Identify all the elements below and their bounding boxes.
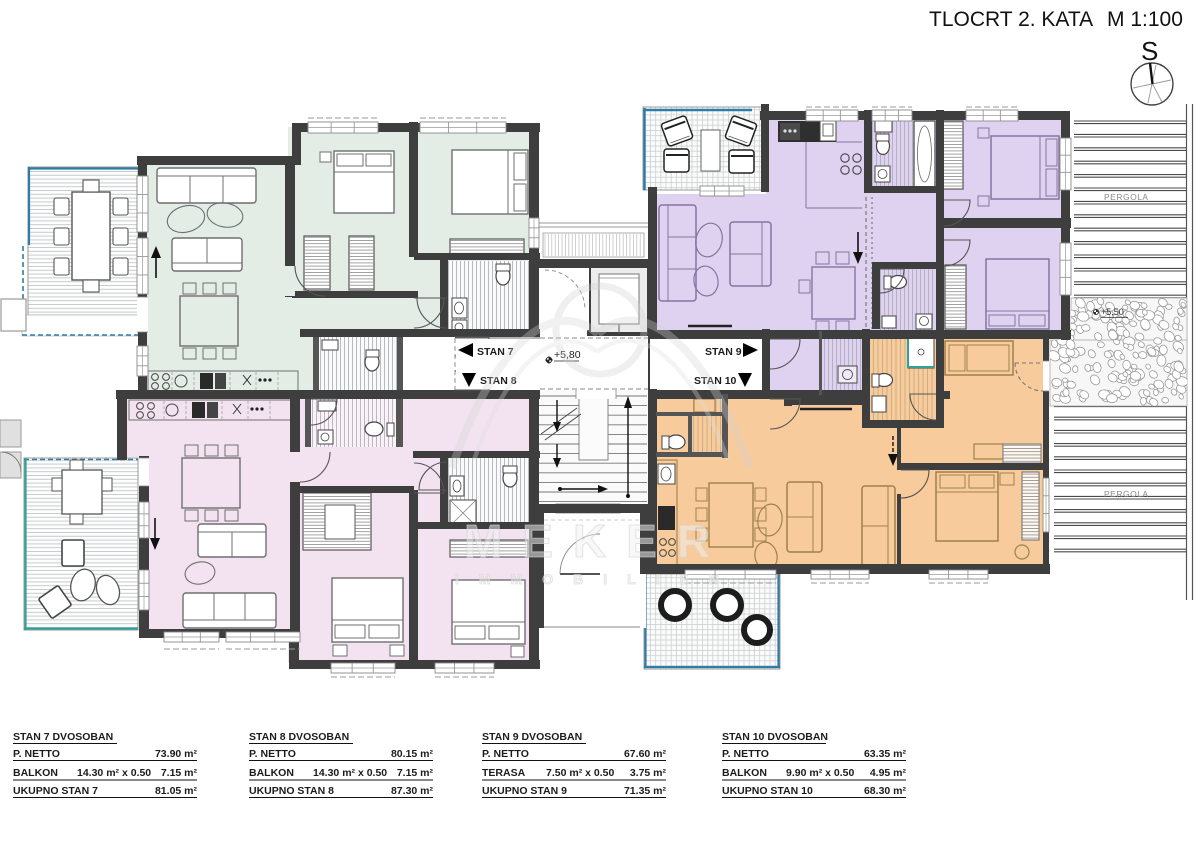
svg-text:STAN 8 DVOSOBAN: STAN 8 DVOSOBAN <box>249 731 349 743</box>
svg-text:7.15 m²: 7.15 m² <box>397 767 434 779</box>
svg-text:71.35 m²: 71.35 m² <box>624 785 667 797</box>
svg-text:67.60 m²: 67.60 m² <box>624 748 667 760</box>
svg-text:14.30 m² x 0.50: 14.30 m² x 0.50 <box>313 767 387 779</box>
svg-text:P. NETTO: P. NETTO <box>482 748 529 760</box>
svg-text:4.95 m²: 4.95 m² <box>870 767 907 779</box>
svg-text:PERGOLA: PERGOLA <box>1104 489 1149 499</box>
svg-text:BALKON: BALKON <box>722 767 767 779</box>
svg-text:M 1:100: M 1:100 <box>1107 8 1183 31</box>
svg-text:UKUPNO STAN 9: UKUPNO STAN 9 <box>482 785 567 797</box>
svg-text:IMMOBILIEN: IMMOBILIEN <box>455 571 739 587</box>
svg-text:9.90 m² x 0.50: 9.90 m² x 0.50 <box>786 767 854 779</box>
svg-text:3.75 m²: 3.75 m² <box>630 767 667 779</box>
svg-text:STAN 9 DVOSOBAN: STAN 9 DVOSOBAN <box>482 731 582 743</box>
svg-text:S: S <box>1141 36 1158 66</box>
svg-text:BALKON: BALKON <box>249 767 294 779</box>
svg-text:STAN 7 DVOSOBAN: STAN 7 DVOSOBAN <box>13 731 113 743</box>
svg-text:73.90 m²: 73.90 m² <box>155 748 198 760</box>
svg-text:UKUPNO STAN 10: UKUPNO STAN 10 <box>722 785 813 797</box>
svg-text:+5,50: +5,50 <box>1101 307 1124 317</box>
svg-text:80.15 m²: 80.15 m² <box>391 748 434 760</box>
svg-text:P. NETTO: P. NETTO <box>13 748 60 760</box>
svg-text:P. NETTO: P. NETTO <box>722 748 769 760</box>
svg-text:STAN 10 DVOSOBAN: STAN 10 DVOSOBAN <box>722 731 828 743</box>
svg-text:STAN 9: STAN 9 <box>705 346 742 358</box>
svg-text:UKUPNO STAN 7: UKUPNO STAN 7 <box>13 785 98 797</box>
svg-text:TLOCRT 2. KATA: TLOCRT 2. KATA <box>929 8 1093 31</box>
svg-text:87.30 m²: 87.30 m² <box>391 785 434 797</box>
svg-text:68.30 m²: 68.30 m² <box>864 785 907 797</box>
svg-text:81.05 m²: 81.05 m² <box>155 785 198 797</box>
svg-text:UKUPNO STAN 8: UKUPNO STAN 8 <box>249 785 334 797</box>
svg-text:7.50 m² x 0.50: 7.50 m² x 0.50 <box>546 767 614 779</box>
svg-text:14.30 m² x 0.50: 14.30 m² x 0.50 <box>77 767 151 779</box>
svg-text:PERGOLA: PERGOLA <box>1104 192 1149 202</box>
svg-text:P. NETTO: P. NETTO <box>249 748 296 760</box>
svg-text:7.15 m²: 7.15 m² <box>161 767 198 779</box>
svg-text:BALKON: BALKON <box>13 767 58 779</box>
svg-text:TERASA: TERASA <box>482 767 526 779</box>
svg-text:MEKER: MEKER <box>464 515 730 567</box>
svg-text:63.35 m²: 63.35 m² <box>864 748 907 760</box>
